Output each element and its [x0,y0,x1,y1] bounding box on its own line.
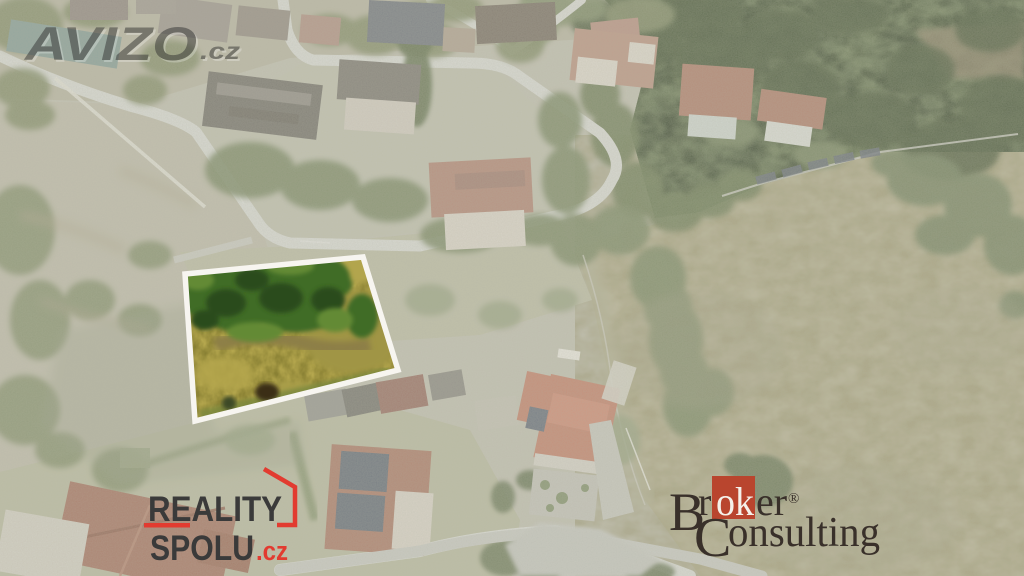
svg-text:®: ® [788,491,799,507]
svg-text:C: C [694,507,731,569]
svg-text:onsulting: onsulting [728,510,880,556]
svg-text:.cz: .cz [256,536,288,566]
svg-text:AVIZO: AVIZO [24,17,197,70]
svg-text:.cz: .cz [200,38,241,64]
svg-text:SPOLU: SPOLU [150,529,254,568]
